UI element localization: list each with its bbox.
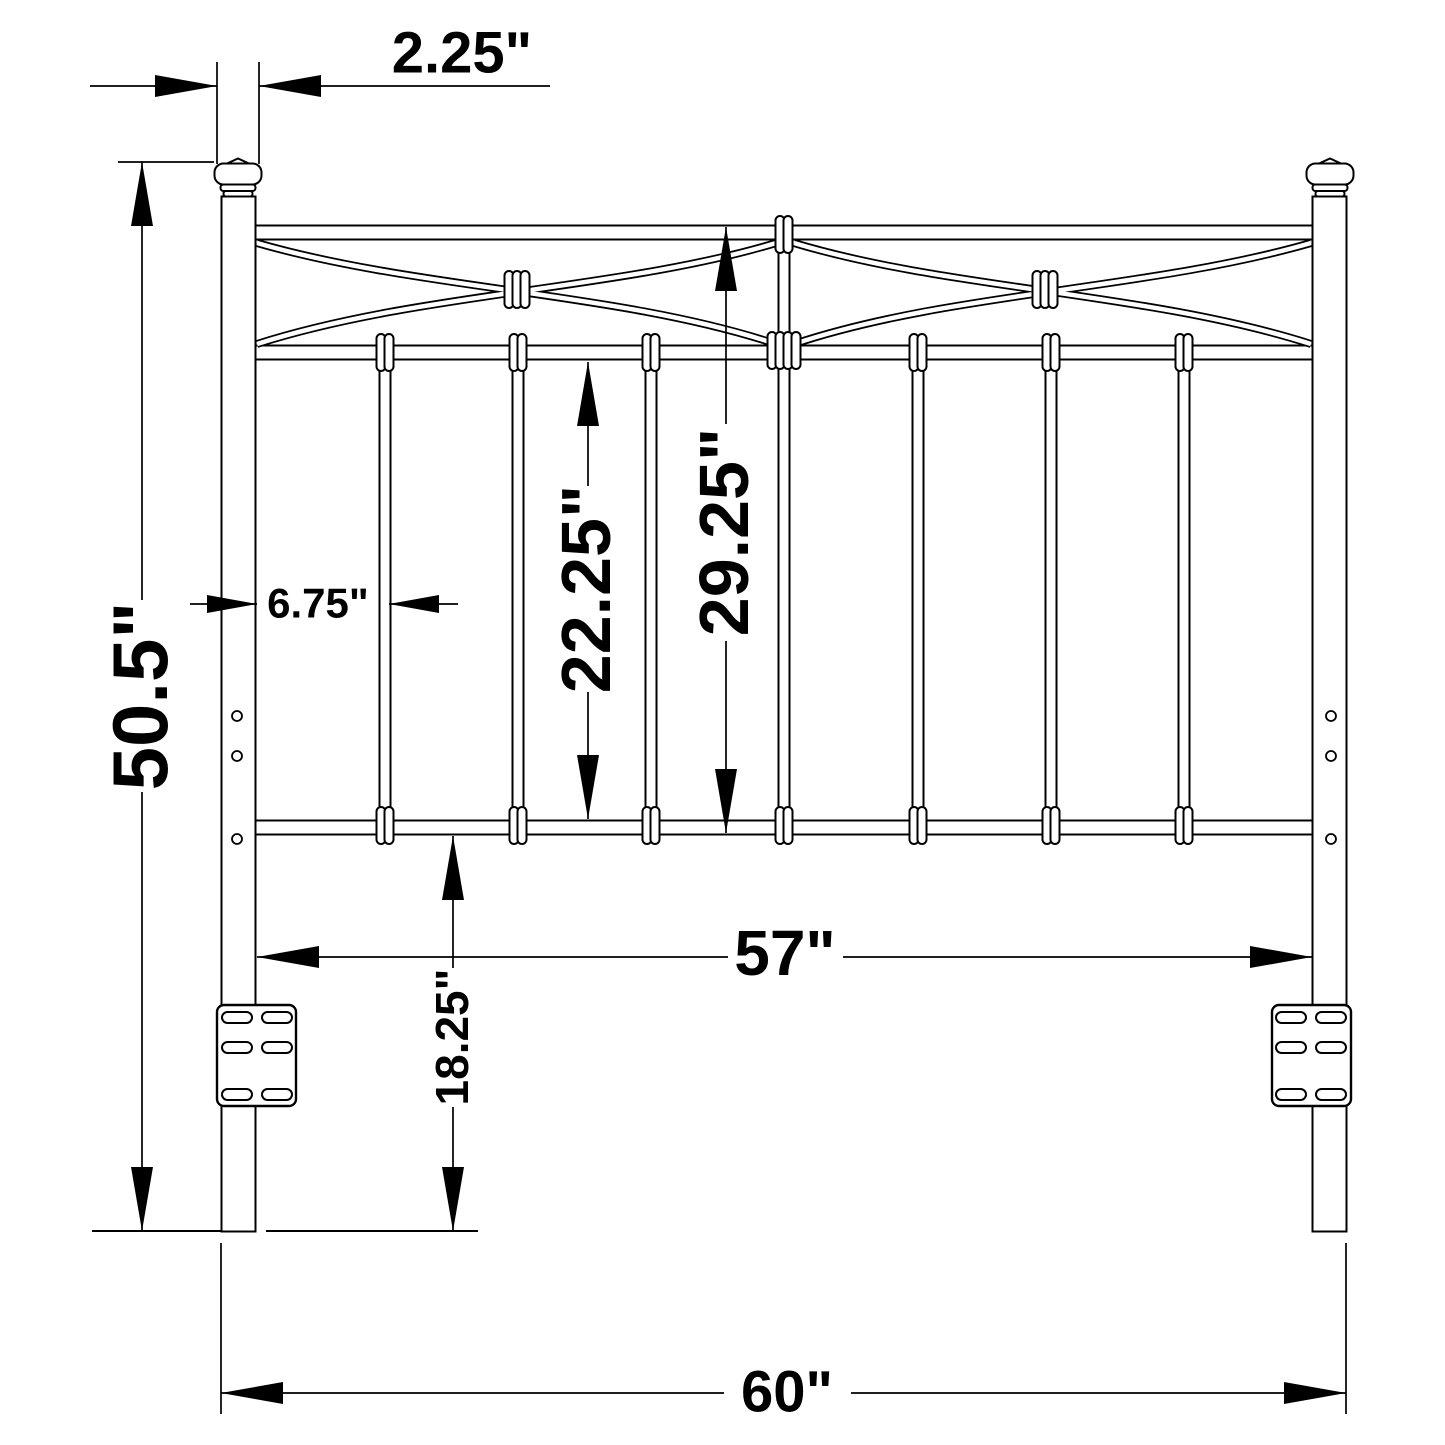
- collar: [910, 334, 927, 371]
- dim-overall-height: 50.5": [96, 162, 214, 1231]
- extension-lines: [217, 62, 259, 164]
- collar: [1043, 334, 1060, 371]
- dim-post-width: 2.25": [90, 21, 550, 165]
- collar: [510, 334, 527, 371]
- arrowhead: [389, 595, 439, 613]
- arrowhead: [1284, 1382, 1346, 1404]
- arrowhead: [221, 1382, 283, 1404]
- arrowhead: [131, 1167, 153, 1231]
- collar-cross-right: [1033, 271, 1058, 308]
- headboard: [92, 159, 1354, 1232]
- dim-inner-width: 57": [257, 917, 1312, 989]
- arrowhead: [442, 1167, 464, 1231]
- arrowhead: [442, 836, 464, 900]
- collar: [776, 807, 793, 844]
- collar: [510, 807, 527, 844]
- arrowhead: [155, 75, 217, 97]
- left-post-assembly: [215, 159, 297, 1232]
- collar: [910, 807, 927, 844]
- right-post-assembly: [1272, 159, 1354, 1232]
- arrowhead: [577, 755, 599, 819]
- headboard-dimension-diagram: 2.25" 50.5" 6.75" 22.25" 29.25" 57": [0, 0, 1445, 1445]
- dim-grill-height: 29.25": [685, 227, 763, 833]
- dim-spindle-section-height: 22.25": [547, 362, 625, 819]
- collar-center-middle: [768, 332, 801, 369]
- collar: [643, 807, 660, 844]
- spindles: [385, 228, 1184, 830]
- arrowhead: [577, 362, 599, 426]
- diagram-canvas: 2.25" 50.5" 6.75" 22.25" 29.25" 57": [0, 0, 1445, 1445]
- dim-label-inner-width: 57": [734, 917, 836, 989]
- collar: [643, 334, 660, 371]
- dim-label-overall-height: 50.5": [96, 602, 184, 791]
- dim-label-post-width: 2.25": [392, 21, 532, 86]
- collar: [1176, 807, 1193, 844]
- dim-overall-width: 60": [221, 1243, 1346, 1425]
- dim-label-leg-height: 18.25": [426, 969, 478, 1106]
- arrowhead: [259, 75, 321, 97]
- dim-label-spindle-section-height: 22.25": [547, 485, 625, 693]
- collar: [377, 807, 394, 844]
- dim-leg-height: 18.25": [426, 836, 478, 1231]
- collar-cross-left: [505, 271, 530, 308]
- dim-label-grill-height: 29.25": [685, 428, 763, 636]
- arrowhead: [1250, 946, 1312, 968]
- dim-label-post-to-spindle: 6.75": [267, 580, 369, 627]
- dim-label-overall-width: 60": [741, 1360, 833, 1425]
- collar-center-top: [776, 216, 793, 253]
- arrowhead: [257, 946, 319, 968]
- collar: [1043, 807, 1060, 844]
- collar: [377, 334, 394, 371]
- collar: [1176, 334, 1193, 371]
- arrowhead: [131, 162, 153, 226]
